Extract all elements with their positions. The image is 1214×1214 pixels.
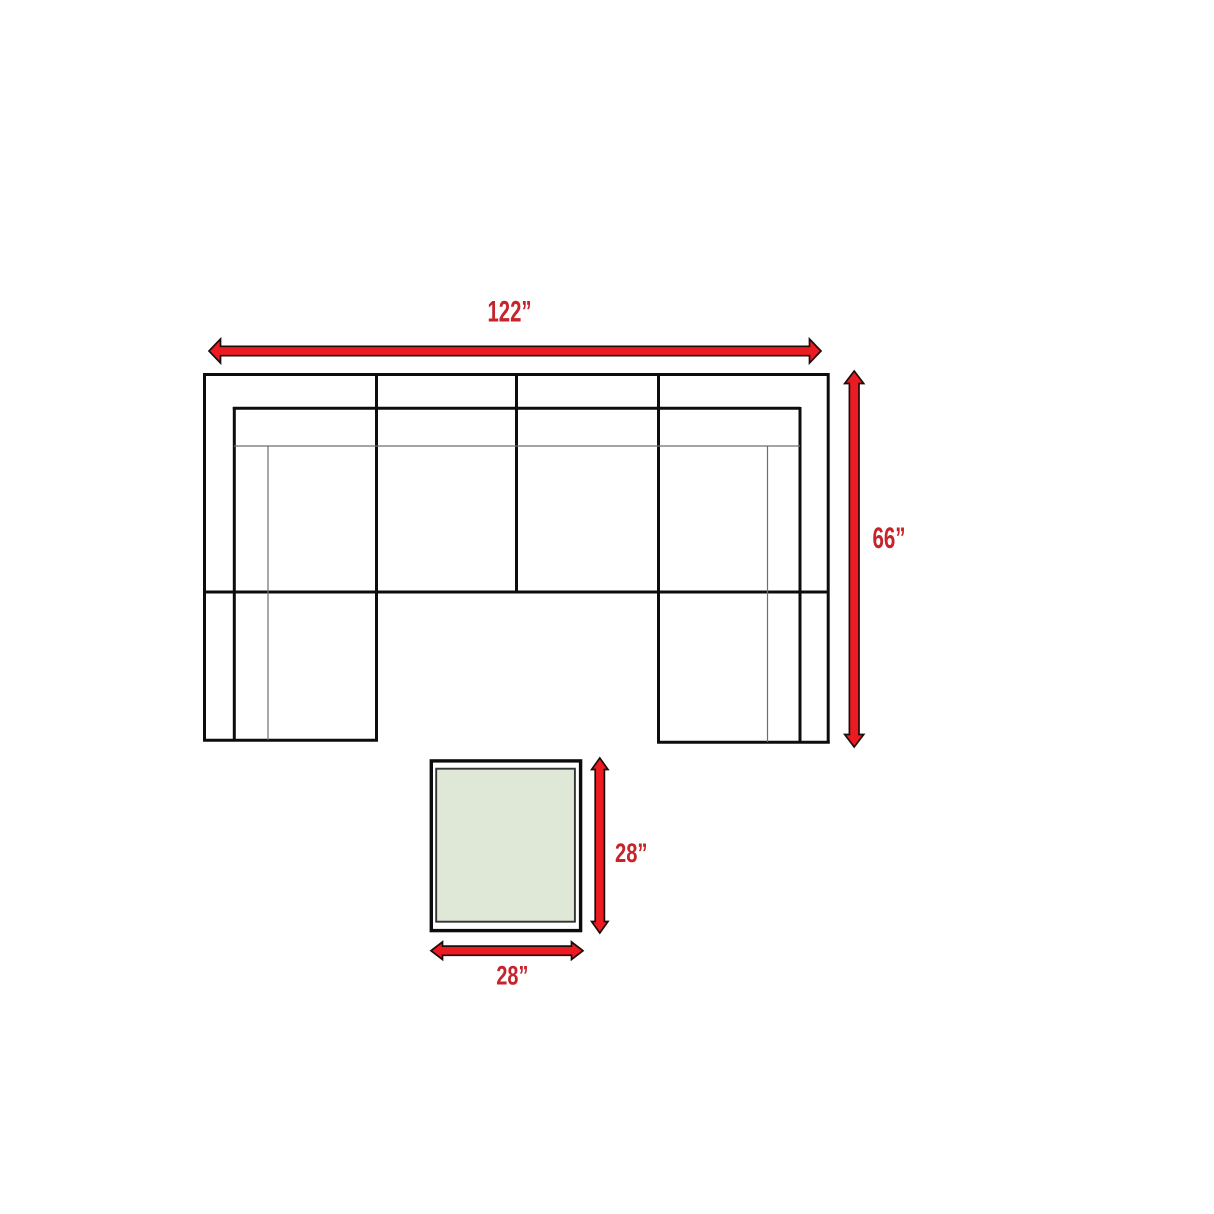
svg-text:122”: 122” <box>488 296 532 329</box>
svg-text:66”: 66” <box>873 522 906 555</box>
svg-text:28”: 28” <box>615 838 648 868</box>
svg-text:28”: 28” <box>496 961 528 991</box>
